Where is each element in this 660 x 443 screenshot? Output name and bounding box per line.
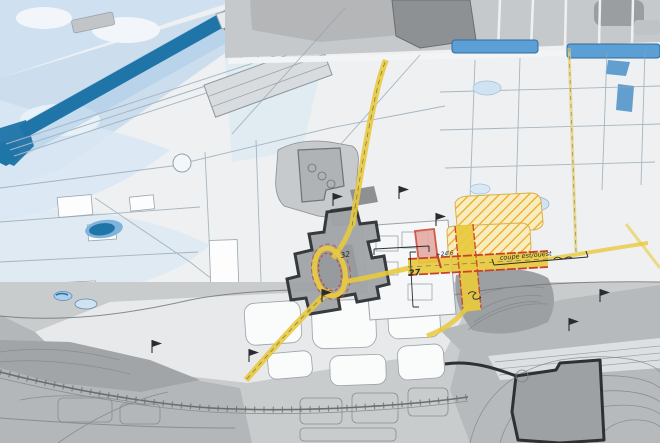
roundabout bbox=[173, 154, 191, 172]
annotation-site-number: 32 bbox=[340, 249, 351, 260]
annotation-path-dimension: 27 bbox=[408, 268, 421, 279]
site-plan-map: 32 27 +24'6 coupe est/ouest bbox=[0, 0, 660, 443]
